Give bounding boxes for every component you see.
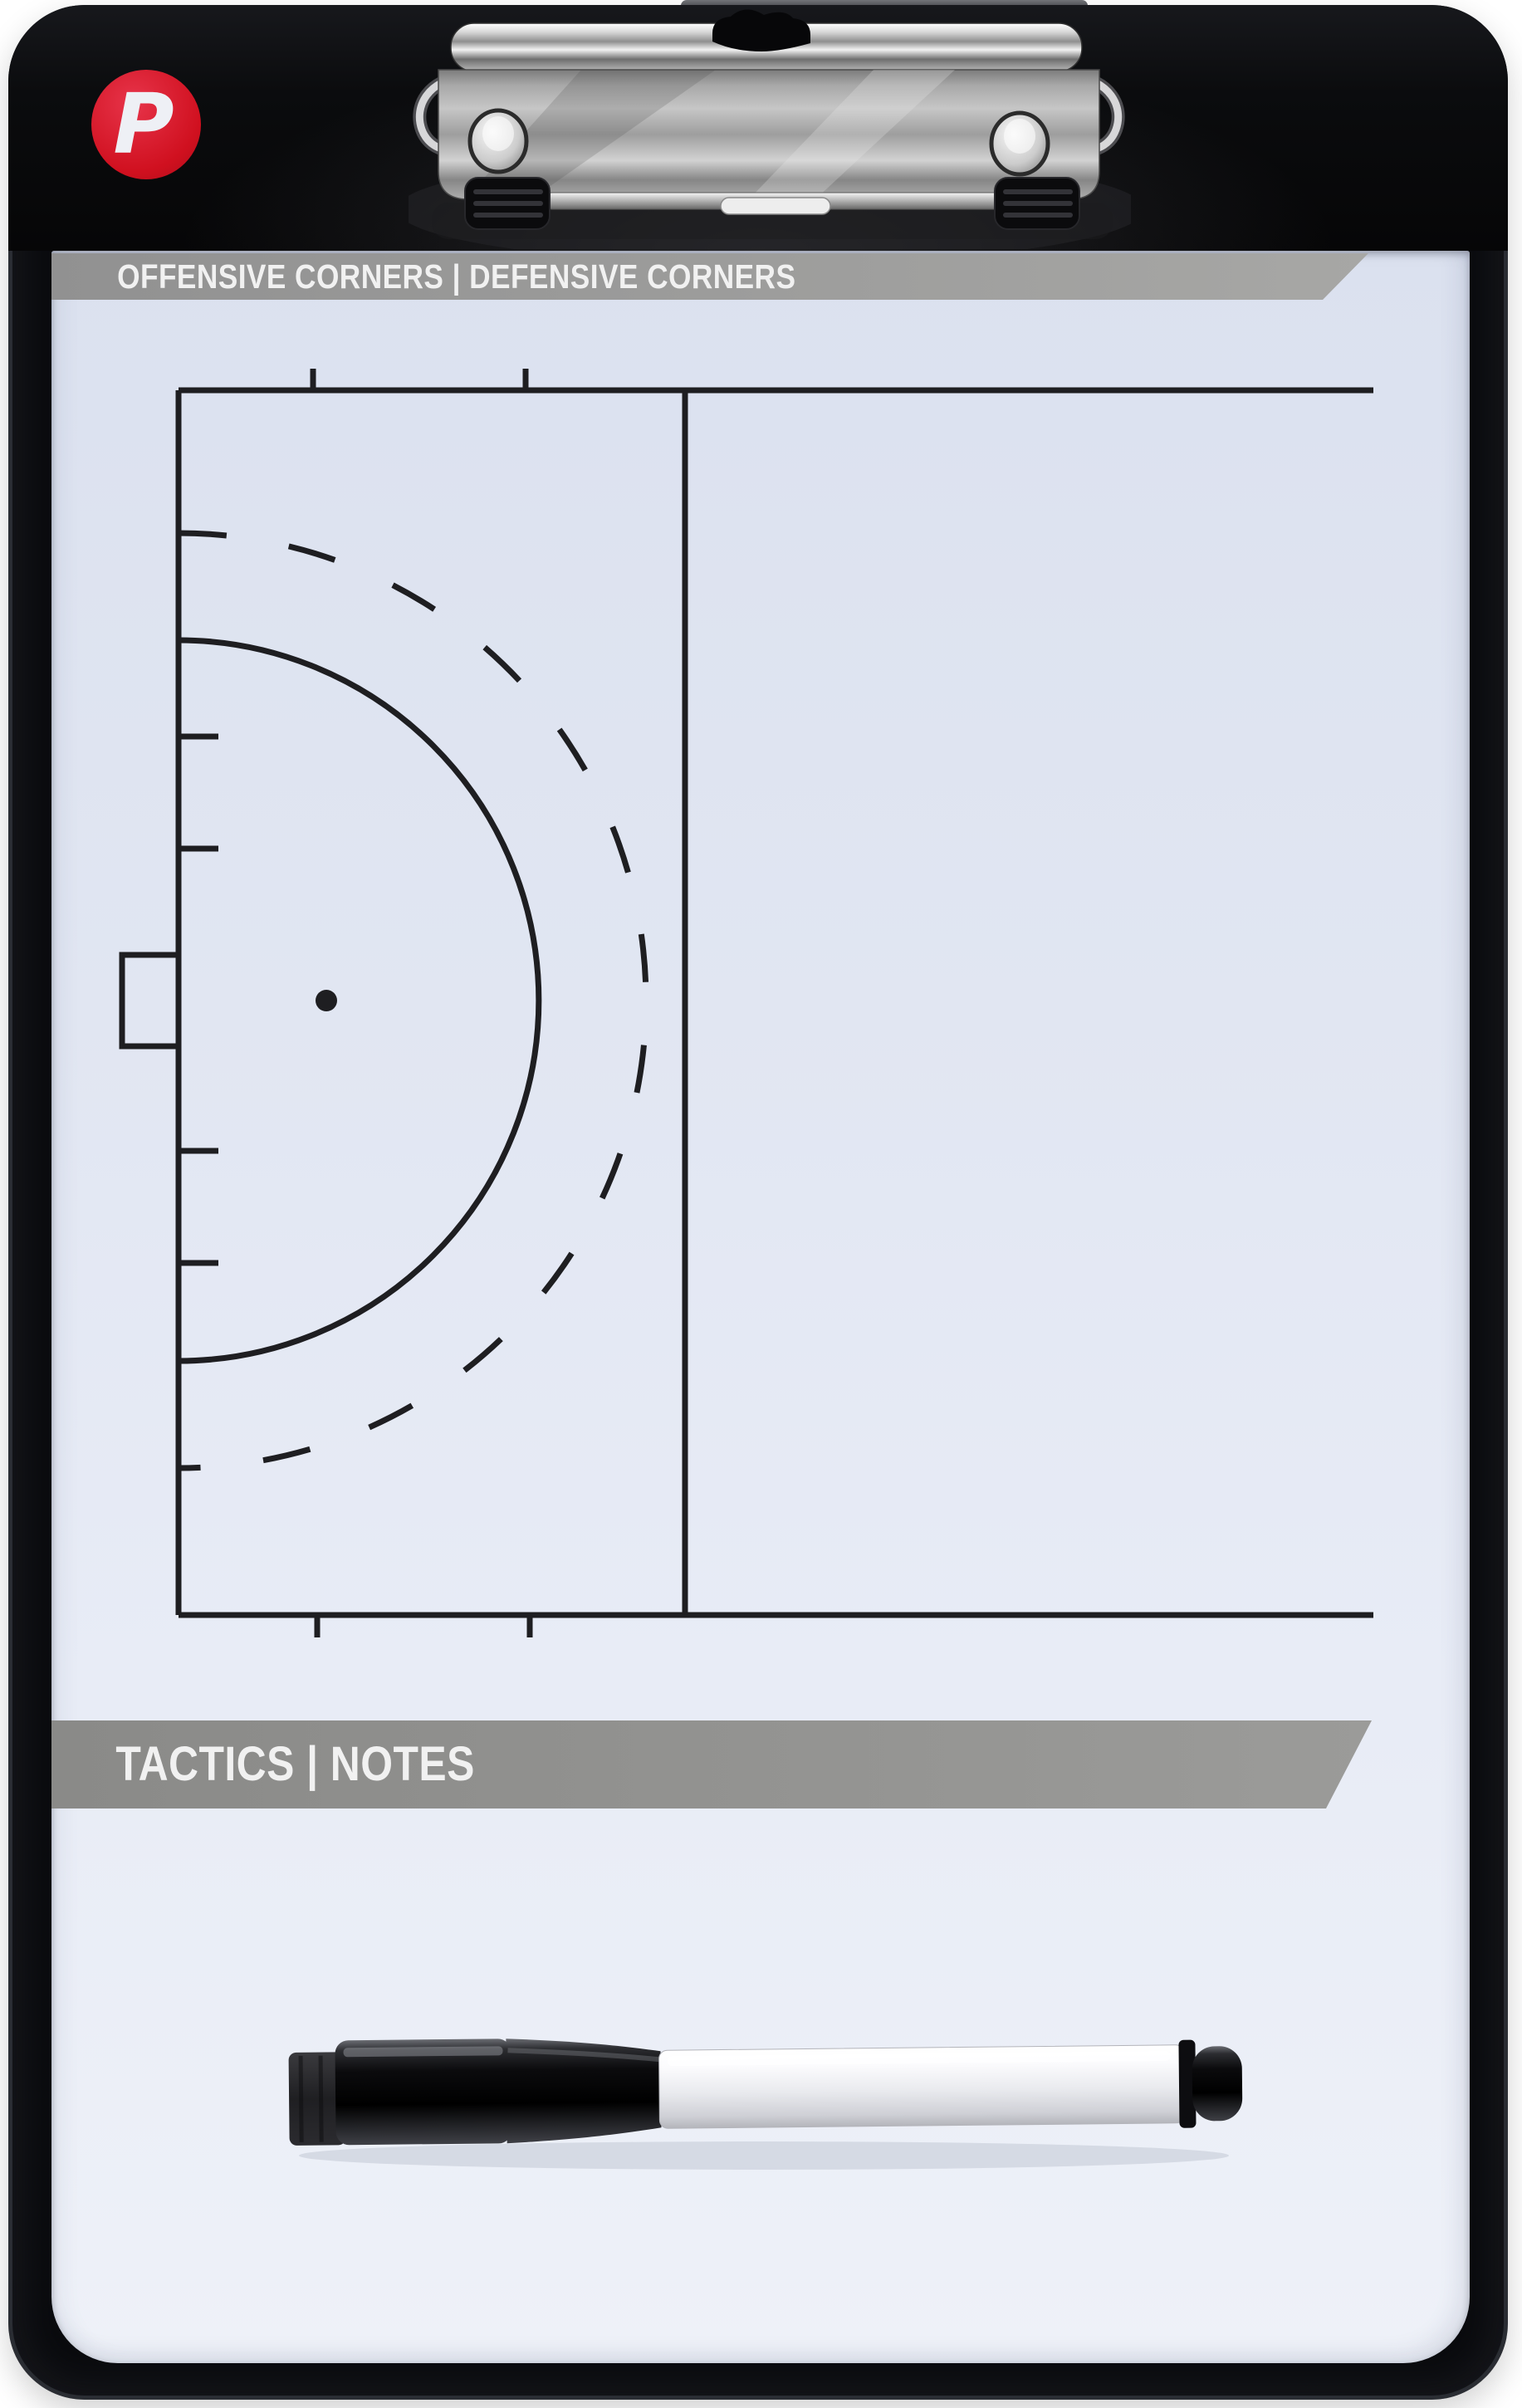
pen-end-cap <box>1192 2046 1243 2122</box>
clip-eyelet-left-highlight <box>482 116 514 151</box>
pen-shadow <box>299 2141 1229 2170</box>
pen-cap-highlight <box>343 2046 502 2057</box>
shooting-circle-solid <box>179 640 539 1361</box>
penalty-spot <box>316 990 337 1011</box>
clip-lip-tab <box>721 198 830 214</box>
product-photo: P OFFENSIVE CORNERS | DEFENSIVE CORNERS … <box>0 0 1522 2408</box>
clipboard-clip <box>409 0 1131 249</box>
clip-hanging-hook <box>712 9 810 51</box>
brand-logo: P <box>91 70 201 179</box>
goal-box <box>122 955 176 1046</box>
clip-eyelet-right-highlight <box>1004 119 1035 154</box>
clip-rubber-grip-right <box>995 178 1079 229</box>
clip-rubber-grip-left <box>465 178 550 229</box>
marker-pen <box>266 2009 1270 2176</box>
field-diagram <box>51 251 1470 1737</box>
brand-logo-letter: P <box>113 83 174 166</box>
shooting-circle-dashed <box>179 533 646 1468</box>
